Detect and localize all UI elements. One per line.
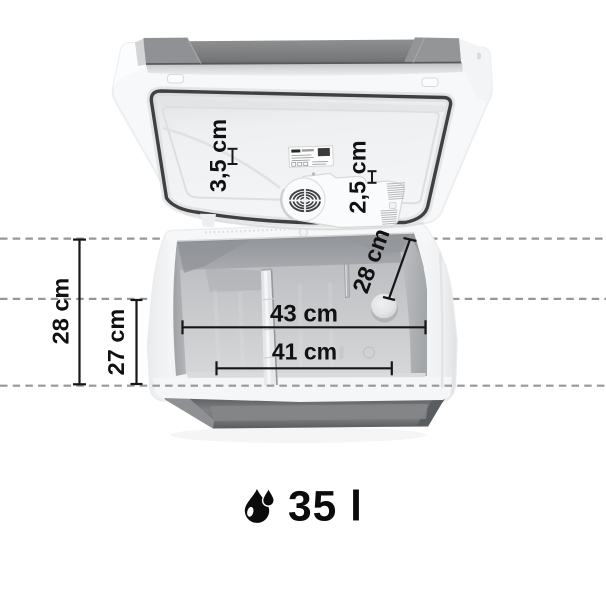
svg-text:43 cm: 43 cm (270, 301, 338, 328)
svg-text:41 cm: 41 cm (272, 338, 337, 364)
svg-text:28 cm: 28 cm (48, 278, 74, 345)
svg-text:2,5 cm: 2,5 cm (345, 140, 371, 213)
svg-text:35 l: 35 l (288, 484, 363, 531)
svg-text:27 cm: 27 cm (103, 309, 129, 376)
svg-text:3,5 cm: 3,5 cm (205, 119, 231, 192)
